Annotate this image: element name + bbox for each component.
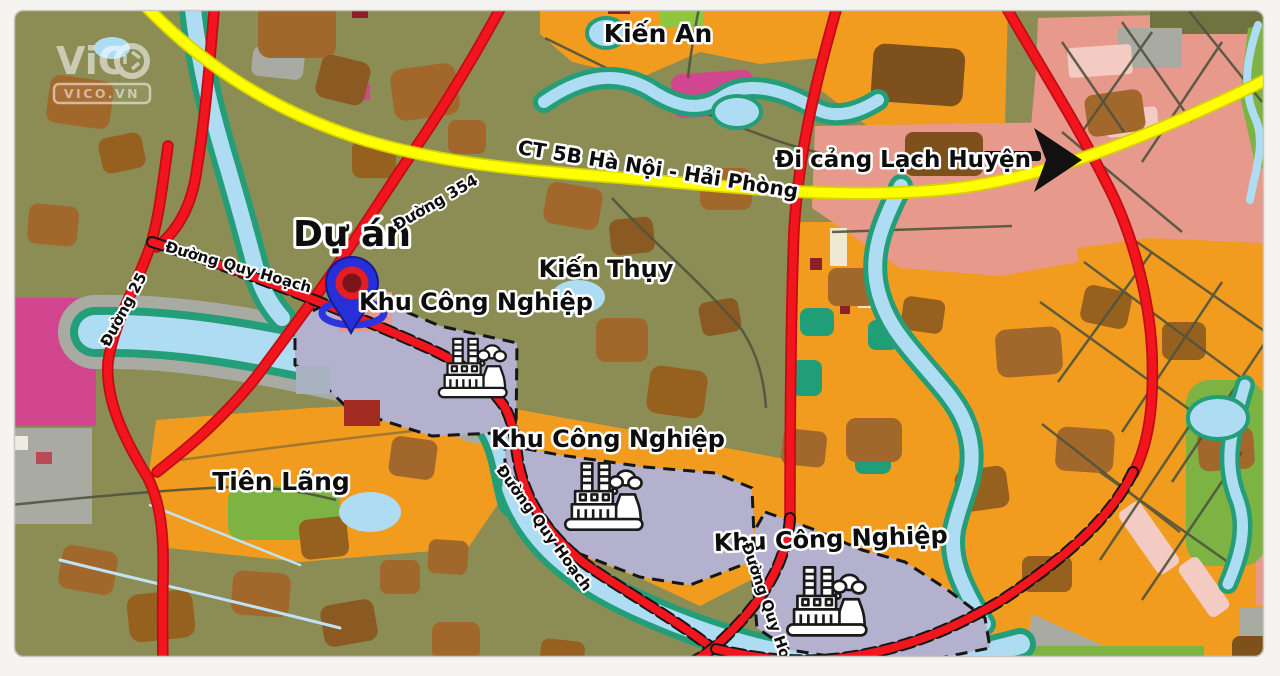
label-port-direction: Đi cảng Lạch Huyện (775, 147, 1031, 173)
label-kien-thuy: Kiến Thụy (539, 255, 674, 283)
label-tien-lang: Tiên Lãng (212, 467, 350, 496)
map-viewer: Kiến An CT 5B Hà Nội - Hải Phòng Đi cảng… (0, 0, 1280, 676)
label-industrial-zone-1: Khu Công Nghiệp (359, 288, 593, 316)
watermark-site-text: VICO.VN (64, 86, 140, 101)
planning-map: Kiến An CT 5B Hà Nội - Hải Phòng Đi cảng… (0, 0, 1280, 676)
label-industrial-zone-2: Khu Công Nghiệp (491, 425, 725, 453)
label-kien-an: Kiến An (604, 19, 713, 48)
